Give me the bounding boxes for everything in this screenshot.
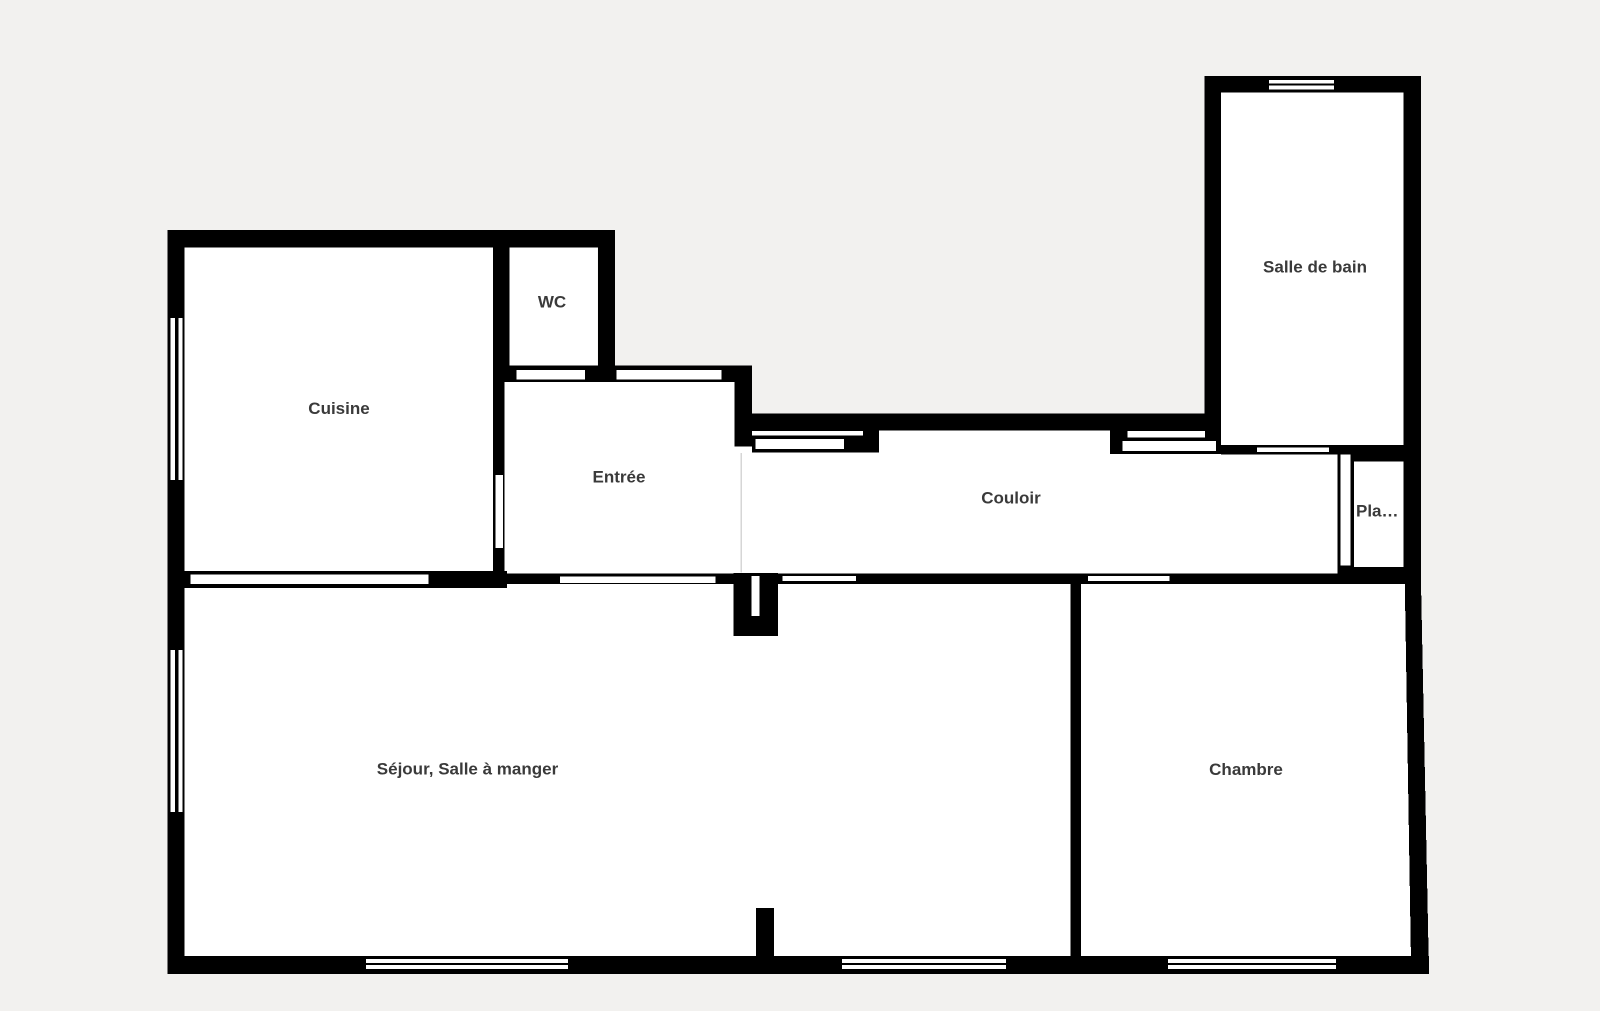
svg-text:Pla…: Pla… [1356, 502, 1399, 521]
svg-text:Chambre: Chambre [1209, 760, 1283, 779]
svg-text:Séjour, Salle à manger: Séjour, Salle à manger [377, 760, 559, 779]
svg-text:Cuisine: Cuisine [308, 399, 369, 418]
svg-text:Salle de bain: Salle de bain [1263, 258, 1367, 277]
svg-text:WC: WC [538, 293, 566, 312]
svg-text:Entrée: Entrée [593, 468, 646, 487]
svg-text:Couloir: Couloir [981, 489, 1041, 508]
